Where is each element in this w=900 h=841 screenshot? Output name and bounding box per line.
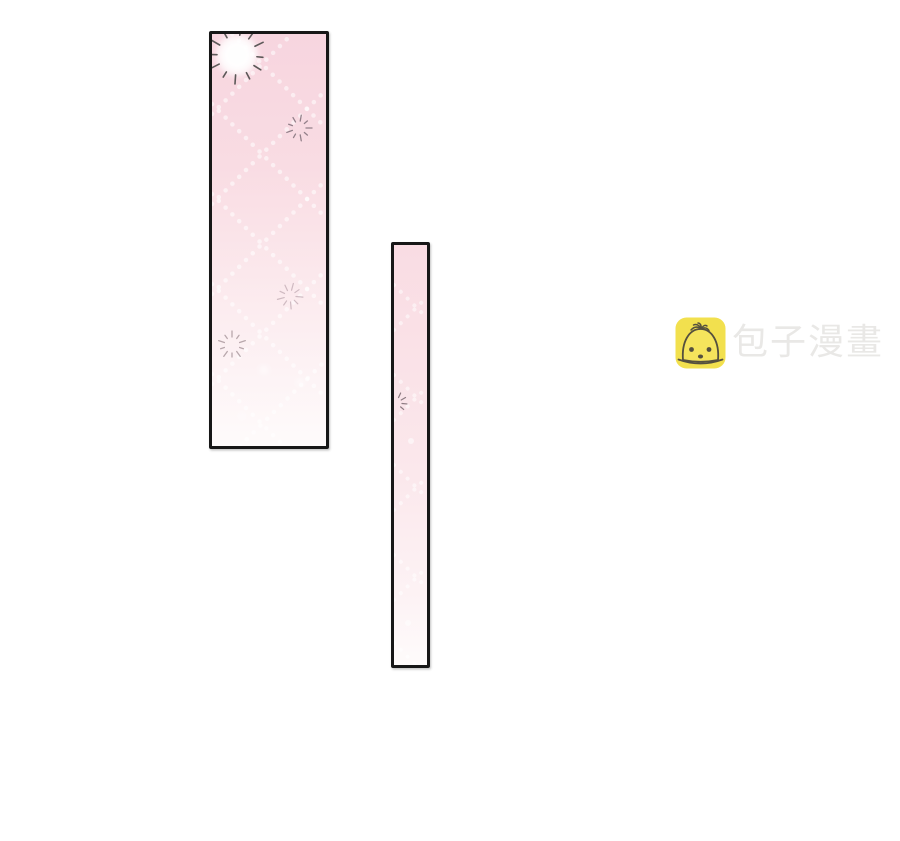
lattice-dots-pattern: [212, 34, 326, 446]
lattice-dots-pattern: [394, 285, 427, 665]
watermark-text: 包子漫畫: [732, 317, 884, 369]
sparkle-icon: [277, 283, 303, 309]
comic-page: 包子漫畫: [0, 0, 900, 841]
bun-eye-right: [707, 347, 712, 352]
comic-panel-large: [209, 31, 329, 449]
glint-dots: [405, 438, 414, 626]
bun-eye-left: [689, 347, 694, 352]
sparkle-icon: [287, 115, 312, 141]
panel-narrow-decorations: [394, 245, 427, 665]
watermark-logo: 包子漫畫: [675, 317, 884, 369]
sparkle-icon: [219, 331, 246, 357]
bun-mouth: [698, 355, 703, 359]
baozi-mascot-icon: [675, 317, 726, 369]
sunburst-icon: [212, 34, 263, 84]
comic-panel-narrow: [391, 242, 430, 668]
panel-large-decorations: [212, 34, 326, 446]
